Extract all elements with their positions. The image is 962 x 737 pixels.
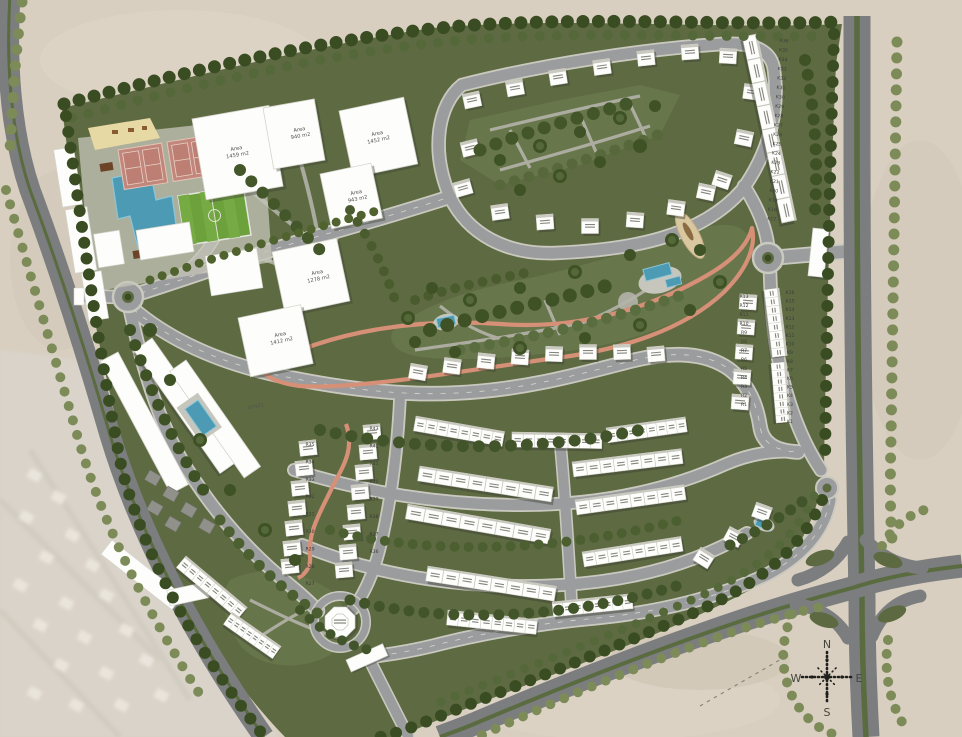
compass-south-label: S: [824, 706, 831, 719]
unit-labels-r-west-west-col: R35R34R33R32R31R30R29R28R27: [305, 442, 314, 587]
compass-center-icon: [824, 674, 830, 680]
compass-north-label: N: [823, 638, 831, 651]
west-gate: [74, 288, 84, 305]
roundabout-east: [753, 243, 783, 273]
masterplan-canvas: Area1459 m2 Area940 m2 Area1452 m2 Area9…: [0, 0, 962, 737]
compass-east-label: E: [856, 672, 863, 685]
compass-west-label: W: [791, 672, 802, 685]
siteplan-svg: Area1459 m2 Area940 m2 Area1452 m2 Area9…: [0, 0, 962, 737]
tree-icon: [125, 294, 132, 301]
tree-icon: [765, 255, 772, 262]
